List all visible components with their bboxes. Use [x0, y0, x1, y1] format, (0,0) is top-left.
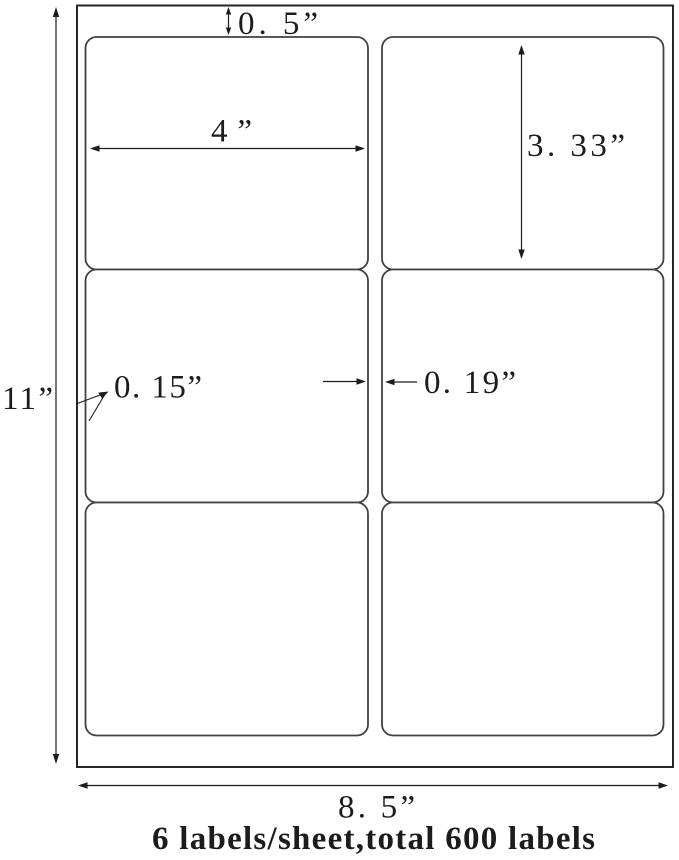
svg-text:0. 15”: 0. 15”: [114, 370, 202, 406]
svg-text:0. 19”: 0. 19”: [424, 365, 516, 401]
svg-text:3. 33”: 3. 33”: [527, 128, 625, 164]
svg-text:6 labels/sheet,total 600 label: 6 labels/sheet,total 600 labels: [152, 821, 595, 857]
svg-text:11”: 11”: [2, 381, 53, 417]
svg-text:0. 5”: 0. 5”: [238, 6, 318, 42]
